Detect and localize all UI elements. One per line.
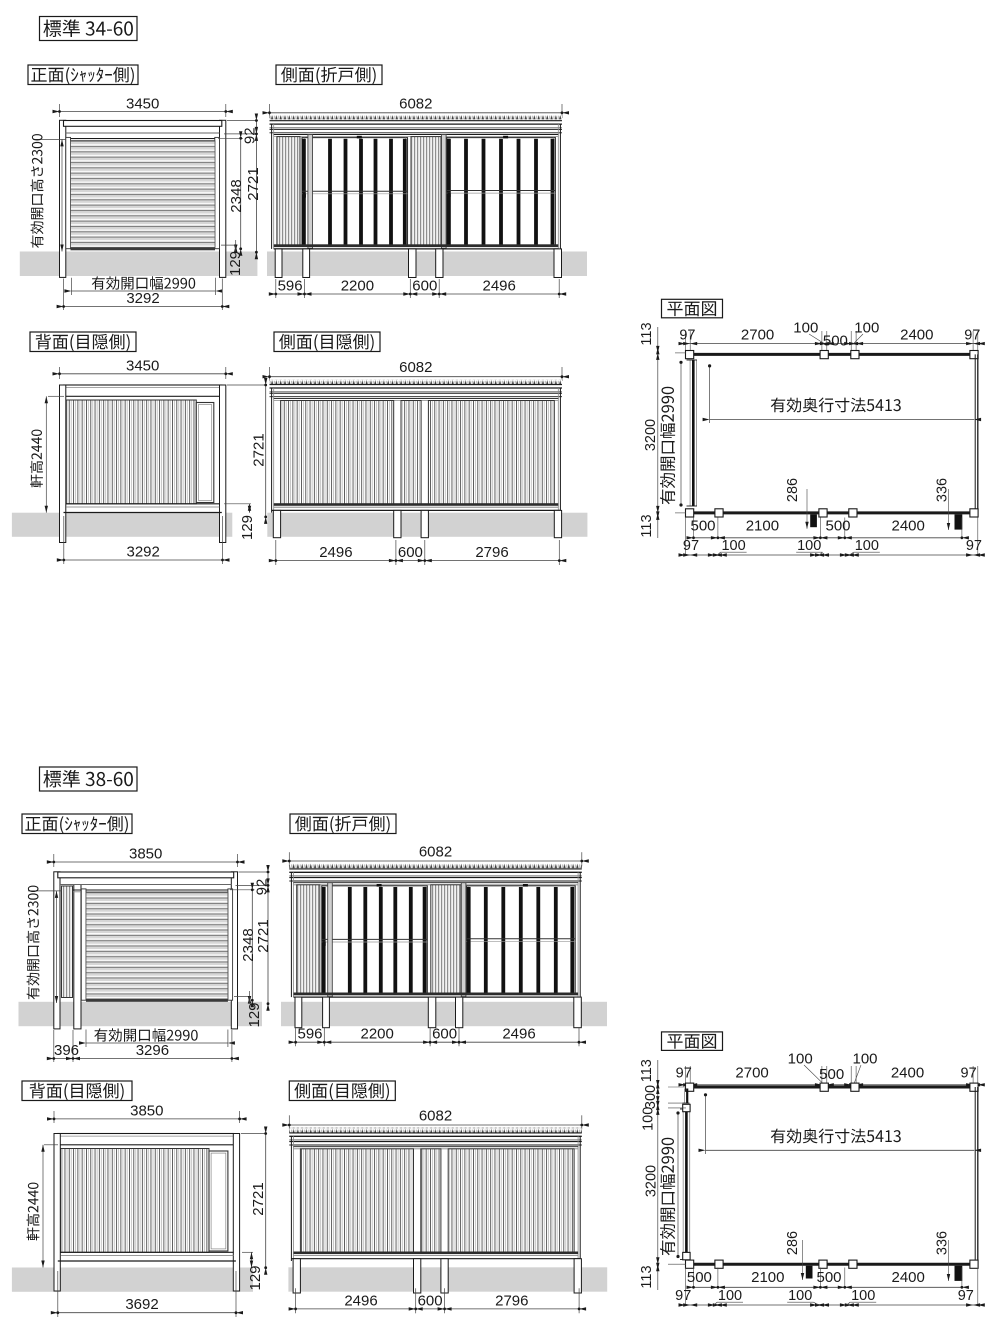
svg-text:336: 336: [935, 1231, 951, 1255]
svg-text:3292: 3292: [126, 290, 159, 307]
svg-text:97: 97: [958, 1288, 974, 1304]
svg-text:97: 97: [966, 538, 982, 554]
svg-text:2721: 2721: [255, 919, 272, 952]
svg-text:2348: 2348: [228, 179, 245, 212]
svg-text:2496: 2496: [502, 1026, 535, 1043]
svg-text:113: 113: [639, 1059, 655, 1082]
svg-text:600: 600: [412, 278, 437, 295]
svg-text:113: 113: [639, 514, 655, 537]
svg-text:3692: 3692: [125, 1296, 158, 1313]
svg-text:3200: 3200: [644, 1165, 660, 1197]
svg-text:2400: 2400: [892, 518, 925, 535]
svg-text:3200: 3200: [643, 419, 659, 451]
svg-text:500: 500: [819, 1066, 844, 1083]
svg-text:100: 100: [718, 1288, 742, 1304]
svg-text:2400: 2400: [891, 1065, 924, 1082]
svg-text:2721: 2721: [250, 433, 267, 466]
svg-text:500: 500: [687, 1269, 712, 1286]
svg-text:2200: 2200: [341, 278, 374, 295]
svg-text:97: 97: [683, 538, 699, 554]
svg-text:2796: 2796: [495, 1292, 528, 1309]
svg-text:2721: 2721: [250, 1182, 267, 1215]
svg-text:3850: 3850: [130, 1102, 163, 1119]
svg-text:286: 286: [785, 1231, 801, 1255]
svg-text:97: 97: [676, 1066, 692, 1082]
svg-text:396: 396: [54, 1042, 79, 1059]
svg-text:113: 113: [639, 1265, 655, 1288]
svg-text:100: 100: [852, 1051, 877, 1068]
svg-text:300: 300: [643, 1085, 659, 1109]
svg-text:100: 100: [788, 1051, 813, 1068]
svg-text:2200: 2200: [361, 1026, 394, 1043]
svg-text:3296: 3296: [136, 1042, 169, 1059]
svg-text:6082: 6082: [419, 844, 452, 861]
svg-text:3450: 3450: [126, 357, 159, 374]
svg-text:2700: 2700: [735, 1065, 768, 1082]
svg-text:2100: 2100: [751, 1269, 784, 1286]
svg-text:6082: 6082: [419, 1108, 452, 1125]
svg-text:286: 286: [785, 478, 801, 502]
svg-text:129: 129: [247, 1265, 264, 1290]
svg-text:500: 500: [816, 1269, 841, 1286]
svg-text:3292: 3292: [127, 544, 160, 561]
svg-text:6082: 6082: [399, 359, 432, 376]
svg-text:100: 100: [788, 1288, 812, 1304]
svg-text:100: 100: [641, 1107, 657, 1131]
svg-text:2721: 2721: [245, 167, 262, 200]
svg-text:600: 600: [418, 1292, 443, 1309]
svg-text:3450: 3450: [126, 96, 159, 113]
svg-text:3850: 3850: [129, 846, 162, 863]
svg-text:92: 92: [254, 879, 271, 896]
svg-text:2796: 2796: [475, 544, 508, 561]
svg-text:100: 100: [854, 320, 879, 337]
svg-text:100: 100: [793, 320, 818, 337]
svg-text:2400: 2400: [900, 327, 933, 344]
svg-text:600: 600: [432, 1026, 457, 1043]
svg-text:97: 97: [679, 328, 695, 344]
svg-text:336: 336: [935, 478, 951, 502]
svg-text:92: 92: [242, 127, 259, 144]
svg-text:6082: 6082: [399, 95, 432, 112]
svg-text:100: 100: [851, 1288, 875, 1304]
svg-text:129: 129: [227, 251, 244, 276]
svg-text:100: 100: [721, 538, 745, 554]
svg-text:2100: 2100: [746, 518, 779, 535]
svg-text:97: 97: [964, 328, 980, 344]
svg-text:129: 129: [246, 1002, 263, 1027]
svg-text:596: 596: [297, 1026, 322, 1043]
svg-text:113: 113: [639, 322, 655, 345]
svg-text:2400: 2400: [892, 1269, 925, 1286]
svg-text:2496: 2496: [319, 544, 352, 561]
svg-text:100: 100: [855, 538, 879, 554]
svg-text:2700: 2700: [741, 327, 774, 344]
svg-text:2496: 2496: [344, 1292, 377, 1309]
svg-text:500: 500: [823, 333, 848, 350]
svg-text:596: 596: [278, 278, 303, 295]
svg-text:500: 500: [825, 518, 850, 535]
svg-text:600: 600: [398, 544, 423, 561]
svg-text:100: 100: [797, 538, 821, 554]
svg-text:97: 97: [675, 1288, 691, 1304]
svg-text:2496: 2496: [483, 278, 516, 295]
svg-text:97: 97: [961, 1066, 977, 1082]
svg-text:129: 129: [239, 515, 256, 540]
svg-text:500: 500: [690, 518, 715, 535]
